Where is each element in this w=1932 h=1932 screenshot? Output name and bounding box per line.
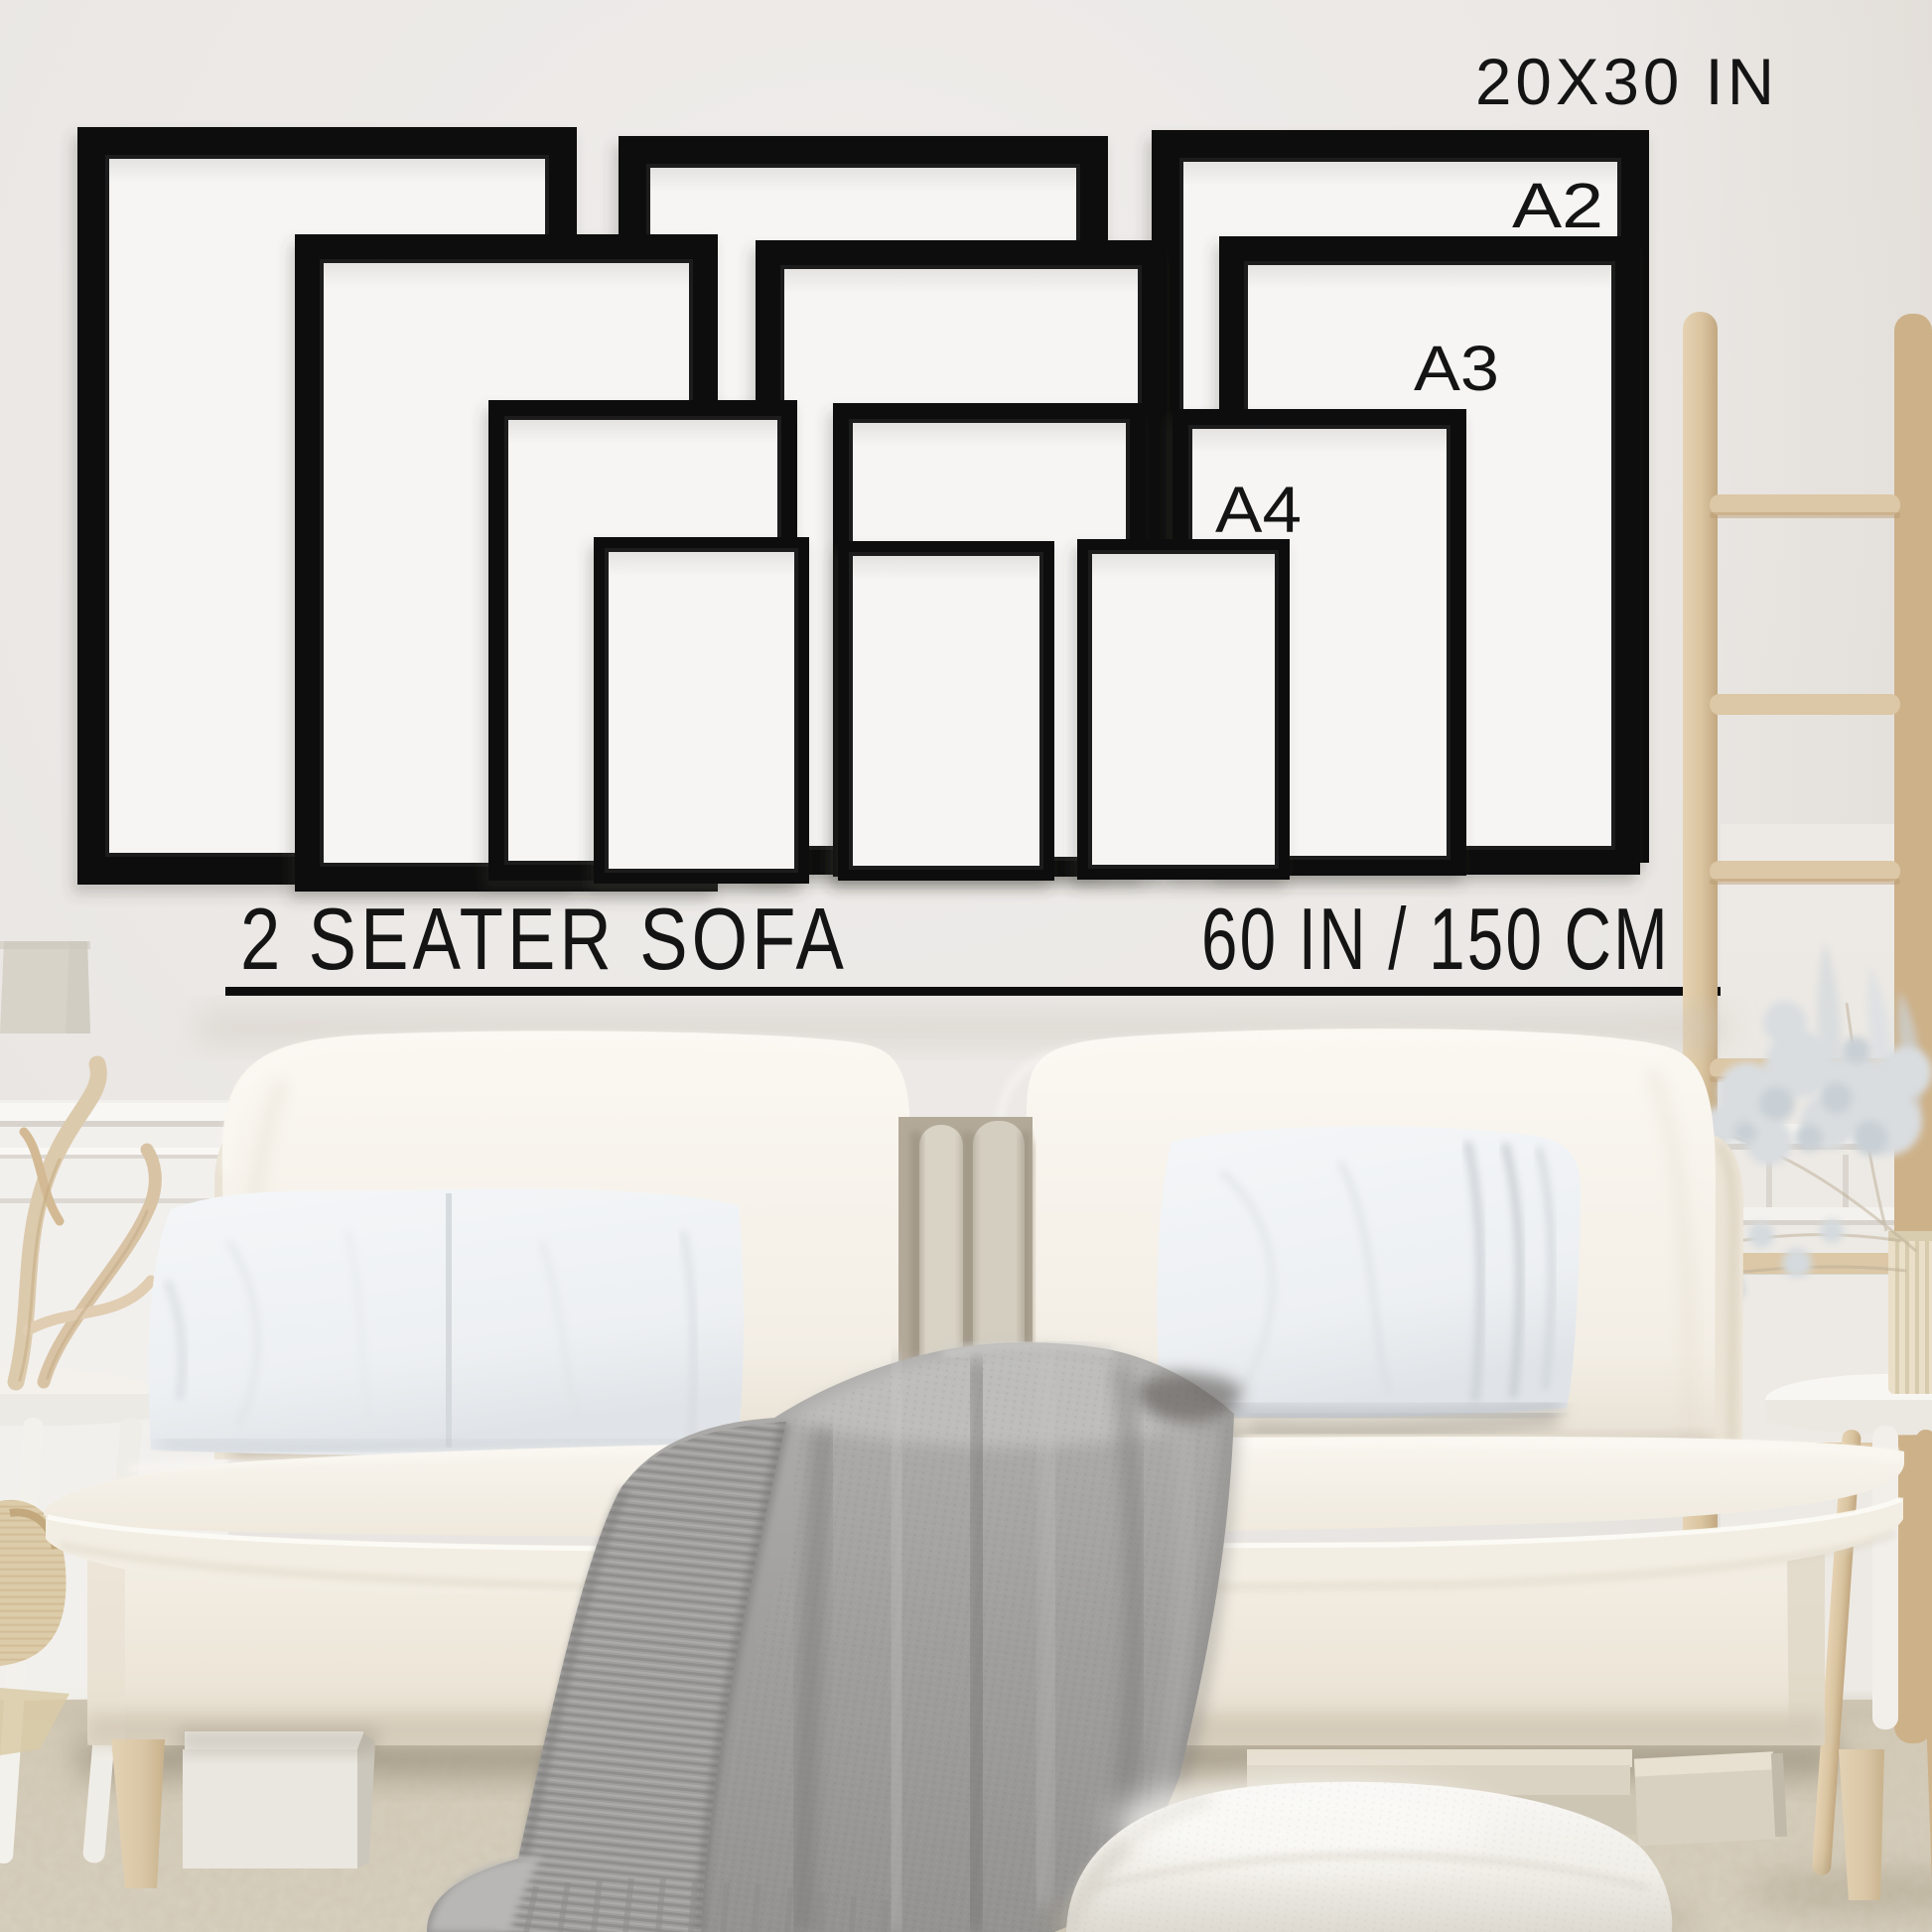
svg-text:A3: A3: [1414, 333, 1499, 404]
svg-text:A2: A2: [1512, 170, 1603, 241]
svg-text:A4: A4: [1215, 473, 1302, 546]
svg-text:60 IN / 150 CM: 60 IN / 150 CM: [1201, 890, 1670, 988]
svg-text:20X30 IN: 20X30 IN: [1475, 45, 1778, 118]
svg-text:2 SEATER SOFA: 2 SEATER SOFA: [240, 890, 848, 988]
